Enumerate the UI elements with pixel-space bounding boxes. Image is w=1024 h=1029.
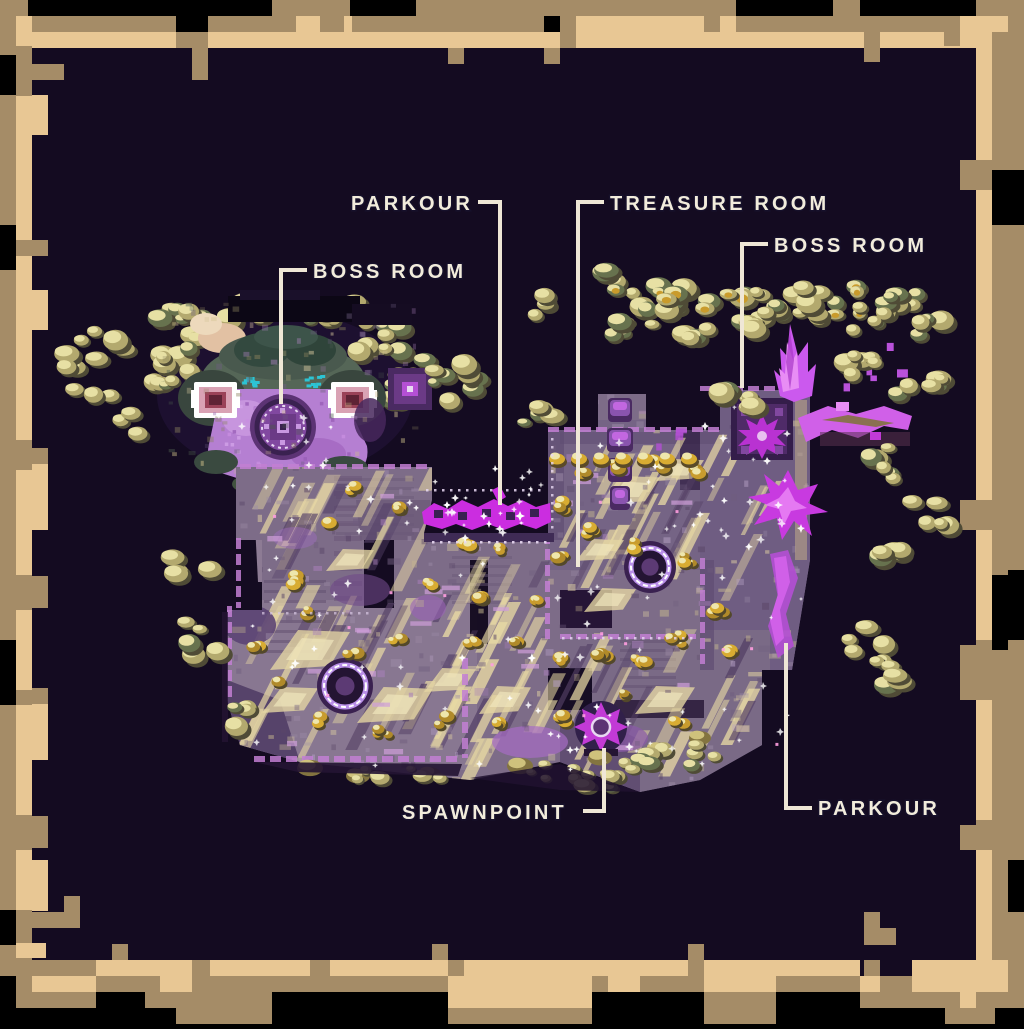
svg-text:SPAWNPOINT: SPAWNPOINT (402, 802, 567, 824)
svg-text:PARKOUR: PARKOUR (818, 798, 940, 820)
svg-text:PARKOUR: PARKOUR (351, 193, 473, 215)
svg-text:BOSS ROOM: BOSS ROOM (774, 235, 927, 257)
svg-text:BOSS ROOM: BOSS ROOM (313, 261, 466, 283)
svg-text:TREASURE ROOM: TREASURE ROOM (610, 193, 829, 215)
